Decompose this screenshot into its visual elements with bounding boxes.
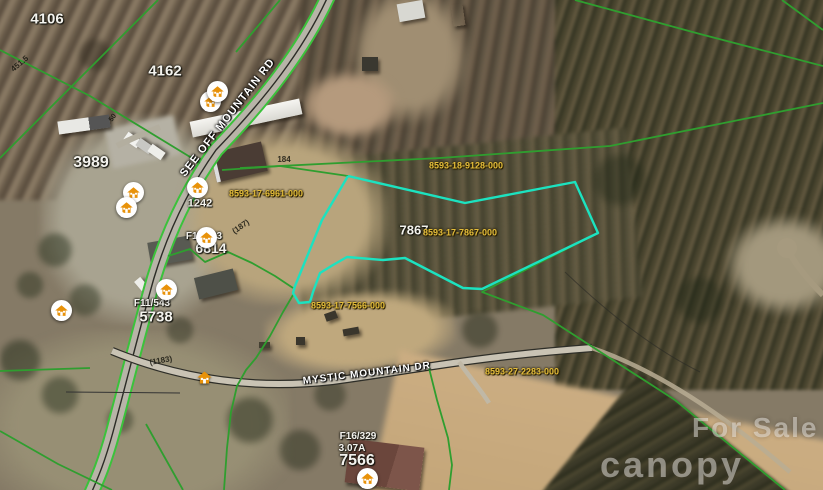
house-marker[interactable] bbox=[51, 300, 72, 321]
house-icon bbox=[119, 200, 134, 215]
road-name-label: SEE OFF MOUNTAIN RD bbox=[179, 57, 278, 179]
survey-dimension-label: 451.5 bbox=[10, 54, 30, 73]
parcel-id-label: 8593-17-7867-000 bbox=[423, 229, 497, 238]
survey-dimension-label: (1183) bbox=[149, 355, 173, 367]
house-marker[interactable] bbox=[357, 468, 378, 489]
house-icon bbox=[54, 303, 69, 318]
parcel-number-label: 3989 bbox=[73, 155, 109, 171]
survey-dimension-label: 50 bbox=[108, 113, 118, 123]
road-name-label: MYSTIC MOUNTAIN DR bbox=[302, 361, 431, 387]
parcel-id-label: 8593-17-7566-000 bbox=[311, 302, 385, 311]
parcel-number-label: 4162 bbox=[148, 64, 181, 79]
house-marker[interactable] bbox=[207, 81, 228, 102]
house-marker[interactable] bbox=[196, 227, 217, 248]
house-marker[interactable] bbox=[116, 197, 137, 218]
parcel-number-label: 4106 bbox=[30, 12, 63, 27]
parcel-id-label: 8593-17-6961-000 bbox=[229, 190, 303, 199]
parcel-id-label: 8593-18-9128-000 bbox=[429, 162, 503, 171]
house-icon bbox=[196, 369, 213, 386]
house-icon bbox=[159, 282, 174, 297]
house-marker[interactable] bbox=[187, 177, 208, 198]
map-annotations: 451.550184(187)(1183)4106416239891242F11… bbox=[0, 0, 823, 490]
survey-dimension-label: (187) bbox=[231, 218, 251, 235]
parcel-number-label: F16/329 bbox=[340, 432, 377, 442]
house-icon bbox=[190, 180, 205, 195]
parcel-id-label: 8593-27-2283-000 bbox=[485, 368, 559, 377]
house-icon bbox=[199, 230, 214, 245]
house-marker[interactable] bbox=[196, 369, 213, 386]
parcel-number-label: 7566 bbox=[339, 453, 375, 469]
house-icon bbox=[210, 84, 225, 99]
aerial-parcel-map: 451.550184(187)(1183)4106416239891242F11… bbox=[0, 0, 823, 490]
parcel-number-label: 5738 bbox=[139, 310, 172, 325]
survey-dimension-label: 184 bbox=[277, 156, 290, 164]
house-marker[interactable] bbox=[156, 279, 177, 300]
house-icon bbox=[360, 471, 375, 486]
